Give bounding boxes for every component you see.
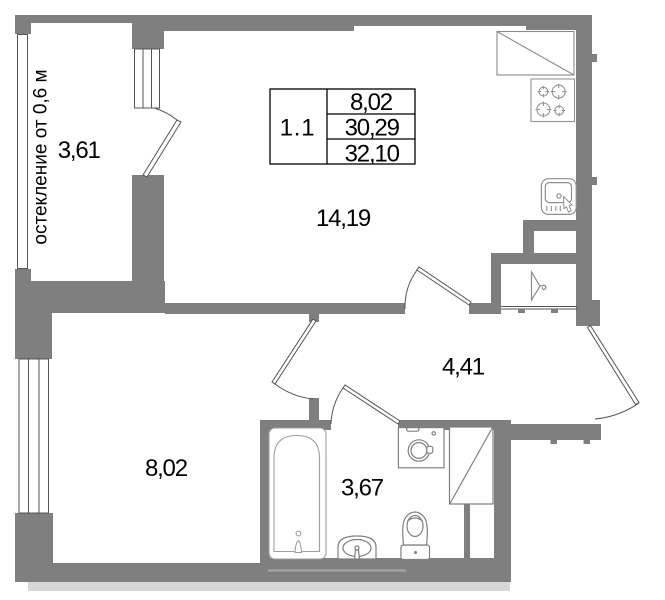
svg-text:14,19: 14,19 [316, 205, 371, 232]
svg-text:4,41: 4,41 [442, 353, 485, 380]
svg-text:30,29: 30,29 [345, 115, 400, 142]
svg-text:остекление от 0,6 м: остекление от 0,6 м [31, 69, 52, 244]
svg-text:8,02: 8,02 [350, 89, 393, 116]
svg-text:32,10: 32,10 [345, 140, 400, 167]
svg-text:1.1: 1.1 [280, 115, 316, 142]
svg-text:3,67: 3,67 [341, 475, 384, 502]
svg-text:3,61: 3,61 [58, 137, 101, 164]
svg-text:8,02: 8,02 [145, 455, 188, 482]
